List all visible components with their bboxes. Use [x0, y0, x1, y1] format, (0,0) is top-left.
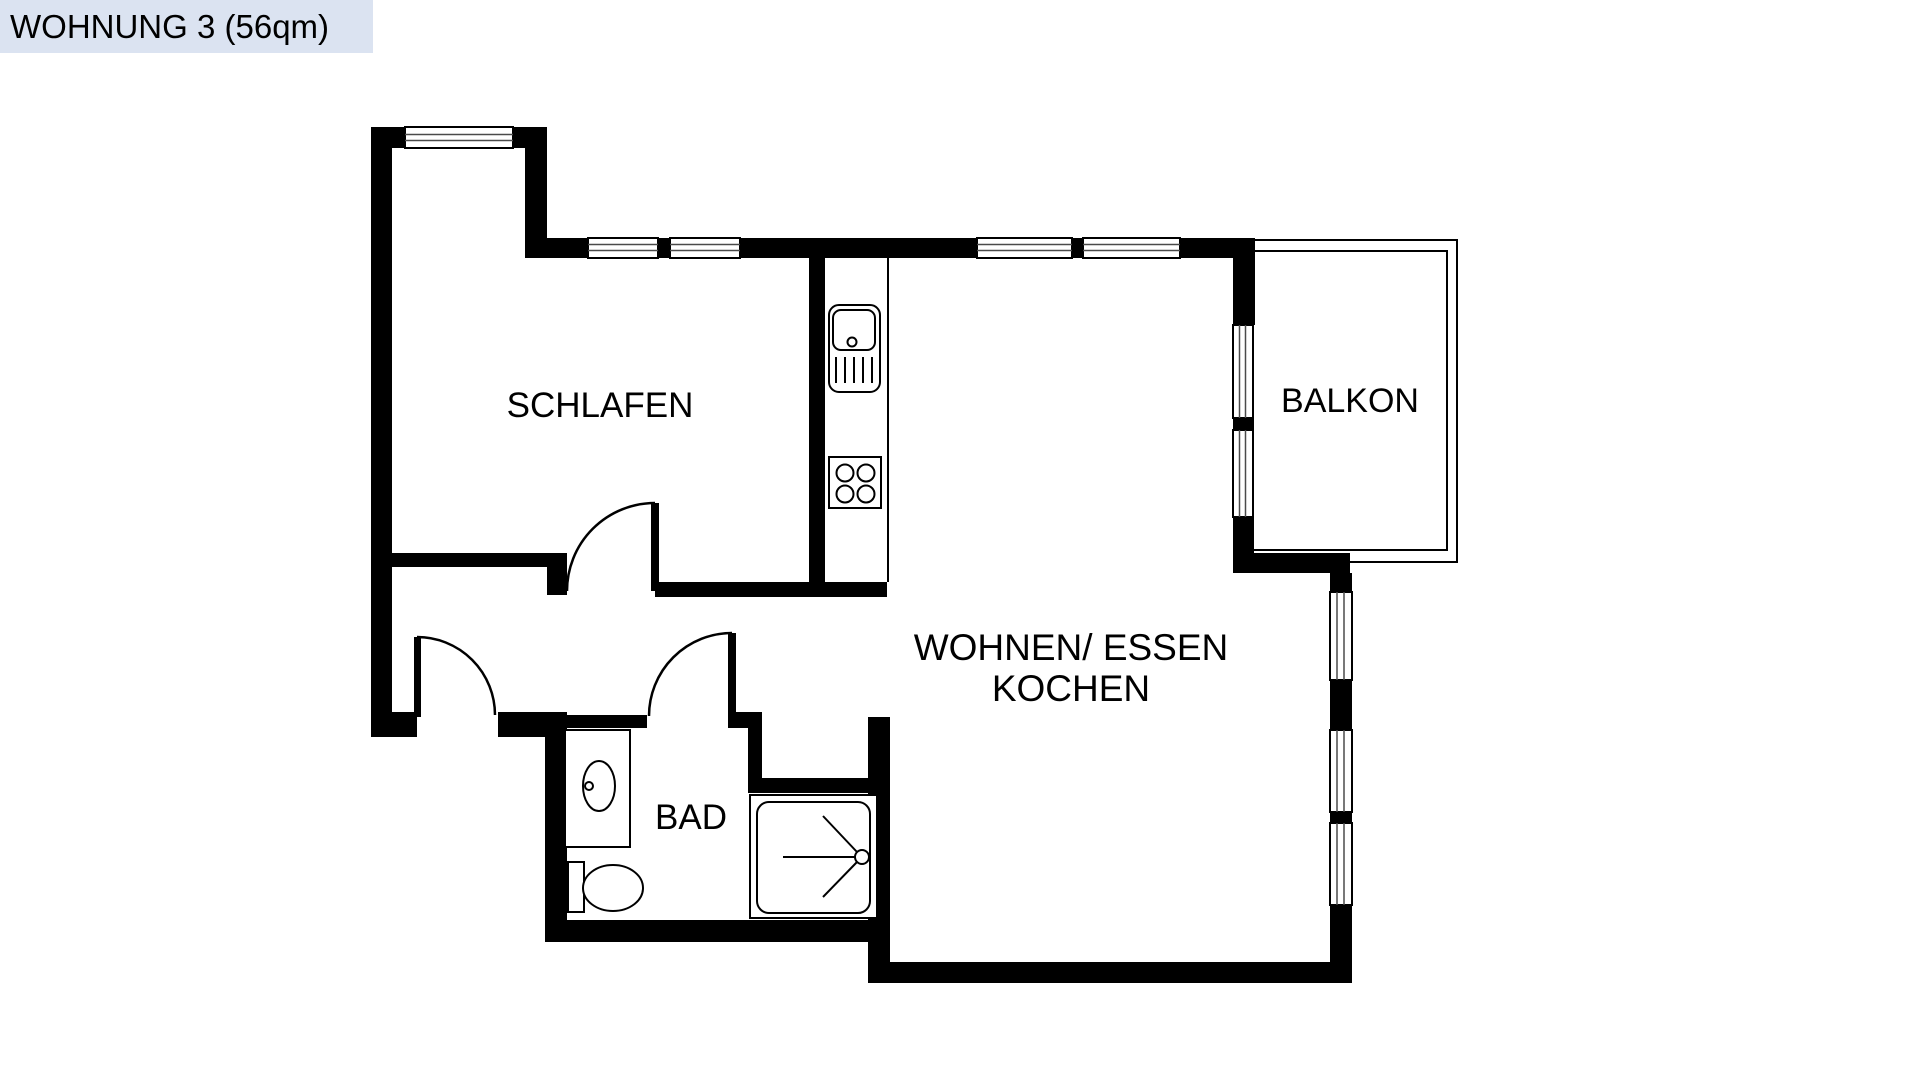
wall [868, 962, 1352, 983]
window-living-top-2 [1083, 238, 1180, 258]
wall [525, 238, 588, 258]
window-living-right-3 [1330, 823, 1352, 905]
wall [567, 715, 647, 728]
door-bathroom [649, 633, 736, 718]
wall [371, 127, 392, 737]
window-living-right-2 [1330, 730, 1352, 812]
wall [498, 712, 567, 737]
shower-icon [750, 795, 877, 918]
window-kitchen-1 [588, 238, 658, 258]
wall-kitchen-divider [809, 258, 825, 583]
wall [655, 582, 887, 597]
window-living-right-1 [1330, 592, 1352, 680]
wall [740, 238, 977, 258]
door-entrance [414, 637, 495, 717]
floorplan-drawing: SCHLAFEN WOHNEN/ ESSEN KOCHEN BALKON BAD [0, 0, 1920, 1079]
window-balcony-door-1 [1233, 325, 1253, 418]
living-label-line2: KOCHEN [992, 668, 1150, 709]
wall [1330, 812, 1352, 823]
wall [1330, 573, 1352, 592]
wall-bathroom-bottom [545, 920, 890, 942]
window-kitchen-2 [670, 238, 740, 258]
door-bedroom [567, 503, 659, 591]
window-living-top-1 [977, 238, 1072, 258]
wall [371, 127, 405, 148]
bedroom-label: SCHLAFEN [507, 386, 694, 425]
toilet-icon [568, 862, 643, 912]
wall [658, 238, 670, 258]
bathroom-label: BAD [655, 798, 727, 837]
wall [1233, 418, 1253, 430]
wall [392, 712, 417, 737]
room-labels: SCHLAFEN WOHNEN/ ESSEN KOCHEN BALKON BAD [507, 382, 1419, 837]
floorplan-page: SCHLAFEN WOHNEN/ ESSEN KOCHEN BALKON BAD… [0, 0, 1920, 1079]
balcony-label: BALKON [1281, 382, 1419, 420]
wall [390, 553, 547, 567]
window-balcony-door-2 [1233, 430, 1253, 517]
wall [513, 127, 547, 148]
wall [1072, 238, 1083, 258]
plan-title-box: WOHNUNG 3 (56qm) [0, 0, 373, 53]
washbasin-icon [565, 730, 630, 847]
wall [547, 553, 567, 595]
doors [414, 503, 736, 718]
wall [748, 778, 878, 793]
stove-burners-icon [829, 457, 881, 508]
wall [1180, 238, 1255, 258]
wall [748, 728, 762, 785]
wall-bathroom-left [545, 737, 567, 942]
kitchen-sink-icon [829, 305, 880, 392]
window-bedroom-top [405, 127, 513, 148]
living-label-line1: WOHNEN/ ESSEN [914, 627, 1229, 668]
plan-title: WOHNUNG 3 (56qm) [10, 8, 329, 46]
wall [1330, 680, 1352, 730]
wall [1233, 258, 1255, 325]
